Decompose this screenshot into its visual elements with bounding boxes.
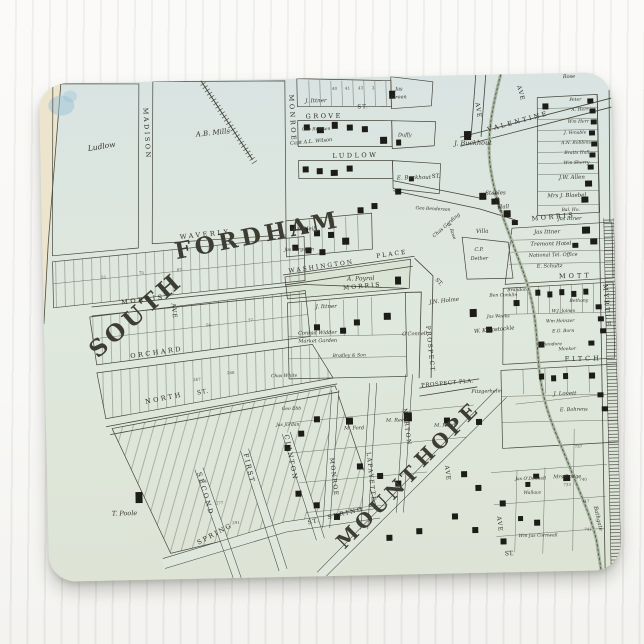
owner-label: Wallace xyxy=(523,490,541,496)
building-footprint xyxy=(512,220,518,225)
owner-label: Chas White xyxy=(271,373,298,380)
owner-label: National Tel. Office xyxy=(527,252,577,259)
building-footprint xyxy=(591,119,597,124)
building-footprint xyxy=(331,170,338,176)
building-footprint xyxy=(572,243,578,248)
owner-label: Wm Heinzer xyxy=(546,318,575,325)
owner-label: J. Lovett xyxy=(552,391,577,398)
building-footprint xyxy=(342,238,349,245)
owner-label: Bethany xyxy=(568,298,588,304)
building-footprint xyxy=(602,406,608,411)
building-footprint xyxy=(475,485,481,491)
building-footprint xyxy=(384,313,391,320)
owner-label: Jas O'Donnell xyxy=(514,475,546,482)
owner-label: Peter xyxy=(568,97,582,103)
owner-label: C.P. xyxy=(474,247,484,253)
owner-label: J. Buckhout xyxy=(452,139,492,148)
owner-label: Market Garden xyxy=(297,338,337,345)
building-footprint xyxy=(395,188,401,194)
building-footprint xyxy=(591,141,597,146)
building-footprint xyxy=(590,238,597,244)
building-footprint xyxy=(362,126,368,132)
lot-number: 268 xyxy=(227,370,235,375)
building-footprint xyxy=(518,516,523,521)
building-footprint xyxy=(559,289,564,295)
lot-number: 264 xyxy=(199,479,207,484)
owner-label: Green xyxy=(391,94,407,100)
lot-number: 741 xyxy=(584,527,592,532)
building-footprint xyxy=(589,372,595,378)
lot-number: 267 xyxy=(193,377,201,382)
building-footprint xyxy=(317,168,323,174)
lot-number: 737 xyxy=(575,444,583,449)
owner-label: E. Schultz xyxy=(536,263,563,270)
owner-label: E. Bohrens xyxy=(559,407,588,414)
owner-label: T. Poole xyxy=(112,509,138,518)
building-footprint xyxy=(542,103,548,109)
building-footprint xyxy=(500,538,506,544)
owner-label: Geo Ebb xyxy=(282,406,302,412)
map-art: SOUTHFORDHAMMOUNTHOPEMADISONMONROEWAVERL… xyxy=(39,72,621,582)
building-footprint xyxy=(470,309,477,317)
owner-label: Wm Jas Cornwall xyxy=(518,532,558,539)
lot-number: 87 xyxy=(177,267,183,272)
building-footprint xyxy=(472,527,478,533)
building-footprint xyxy=(452,513,458,519)
owner-label: Wm Herr xyxy=(568,119,590,125)
owner-label: E. O'Neil xyxy=(289,226,315,233)
building-footprint xyxy=(547,291,552,297)
lot-number: 747 xyxy=(582,499,590,504)
building-footprint xyxy=(539,374,544,380)
building-footprint xyxy=(347,165,353,171)
owner-label: E.G. Born xyxy=(551,328,574,334)
building-footprint xyxy=(386,535,392,541)
building-footprint xyxy=(357,463,363,469)
building-footprint xyxy=(525,482,530,487)
building-footprint xyxy=(587,98,593,103)
owner-label: J.W. Allen xyxy=(558,175,586,182)
building-footprint xyxy=(295,491,301,497)
owner-label: Tremont Hotel xyxy=(530,241,571,248)
building-footprint xyxy=(314,416,320,422)
owner-label: Bradley & Son xyxy=(332,352,366,359)
building-footprint xyxy=(563,373,568,379)
street-label: ST. xyxy=(432,174,441,180)
lot-number: 40 xyxy=(332,86,338,91)
building-footprint xyxy=(395,277,401,285)
building-footprint xyxy=(585,180,592,186)
building-footprint xyxy=(461,471,467,477)
owner-label: Jas Ittner xyxy=(557,216,582,223)
owner-label: M. Reed xyxy=(385,417,407,423)
building-footprint xyxy=(504,210,511,217)
building-footprint xyxy=(380,137,387,144)
owner-label: Mrs Dodge xyxy=(552,474,581,481)
building-footprint xyxy=(358,207,364,213)
owner-label: J. Venable xyxy=(563,130,587,136)
background: SOUTHFORDHAMMOUNTHOPEMADISONMONROEWAVERL… xyxy=(0,0,644,644)
building-footprint xyxy=(534,520,540,526)
owner-label: Duffy xyxy=(397,132,412,138)
owner-label: Jas Jordan xyxy=(275,422,300,429)
building-footprint xyxy=(589,152,595,157)
street-label: FITCH xyxy=(565,354,602,363)
owner-label: Conrad Widder xyxy=(298,330,337,337)
street-label: GROVE xyxy=(306,112,343,121)
building-footprint xyxy=(513,300,519,306)
building-footprint xyxy=(319,249,325,255)
building-footprint xyxy=(535,290,540,296)
building-footprint xyxy=(500,500,506,506)
owner-label: A. Poyrol xyxy=(346,275,375,283)
owner-label: Bratts Hall xyxy=(563,150,590,157)
building-footprint xyxy=(332,122,338,129)
owner-label: Mrs J. Blaebel xyxy=(546,193,586,200)
building-footprint xyxy=(298,431,304,437)
building-footprint xyxy=(371,203,377,209)
owner-label: Jas Ittner xyxy=(533,229,561,236)
street-label: ST. xyxy=(357,104,369,110)
owner-label: Wm Sherry xyxy=(564,160,590,167)
owner-label: Geo Remsen xyxy=(302,126,331,133)
street-label: ST. xyxy=(505,550,514,557)
owner-label: M. Reed xyxy=(433,422,455,428)
owner-label: Bal. Ho. xyxy=(561,207,581,213)
building-footprint xyxy=(589,108,595,113)
lot-number: 291 xyxy=(232,520,240,525)
owner-label: Villa xyxy=(476,229,489,235)
owner-label: Meeker xyxy=(557,346,576,352)
lot-number: 41 xyxy=(345,86,350,91)
lot-number: 75 xyxy=(139,270,145,275)
building-footprint xyxy=(600,328,606,333)
building-footprint xyxy=(346,418,353,425)
building-footprint xyxy=(135,492,142,503)
building-footprint xyxy=(396,139,401,145)
lot-number: 55 xyxy=(101,275,107,280)
lot-number: 77 xyxy=(248,318,254,323)
owner-label: M. Ford xyxy=(343,425,364,431)
building-footprint xyxy=(598,316,604,321)
lot-number: 58 xyxy=(206,322,212,327)
building-footprint xyxy=(377,473,383,479)
building-footprint xyxy=(314,502,320,508)
owner-label: Rose xyxy=(562,74,575,80)
lot-number: 740 xyxy=(579,477,587,482)
building-footprint xyxy=(571,291,576,297)
building-footprint xyxy=(303,166,309,172)
lot-number: 733 xyxy=(563,482,571,487)
building-footprint xyxy=(347,124,353,130)
owner-label: J. Ittner xyxy=(315,304,338,310)
owner-label: Jas Ferguson xyxy=(283,246,314,253)
lot-number: 277 xyxy=(216,500,224,505)
owner-label: W.J. Joines xyxy=(552,308,576,315)
building-footprint xyxy=(582,227,590,234)
owner-label: E. Buckhout xyxy=(396,175,432,182)
building-footprint xyxy=(354,319,360,325)
owner-label: Jas Weeks xyxy=(486,313,511,320)
building-footprint xyxy=(597,392,603,397)
street-label: LUDLOW xyxy=(332,151,378,160)
mousepad: SOUTHFORDHAMMOUNTHOPEMADISONMONROEWAVERL… xyxy=(39,72,621,582)
owner-label: Fitzgerheim xyxy=(470,388,502,395)
street-label: MOTT xyxy=(559,272,592,281)
building-footprint xyxy=(588,340,594,345)
owner-label: Brandon xyxy=(506,287,527,293)
owner-label: O'Connell xyxy=(402,331,427,338)
building-footprint xyxy=(551,375,556,381)
owner-label: A. Herr xyxy=(570,107,589,113)
building-footprint xyxy=(589,130,595,135)
lot-number: 43 xyxy=(358,85,364,90)
building-footprint xyxy=(340,328,346,334)
owner-label: Jas xyxy=(394,86,403,92)
owner-label: Dether xyxy=(470,256,489,262)
building-footprint xyxy=(583,289,588,295)
building-footprint xyxy=(596,304,602,309)
owner-label: J. Ittner xyxy=(304,98,327,104)
owner-label: A.N. Robbins xyxy=(560,139,592,146)
building-footprint xyxy=(416,528,422,534)
